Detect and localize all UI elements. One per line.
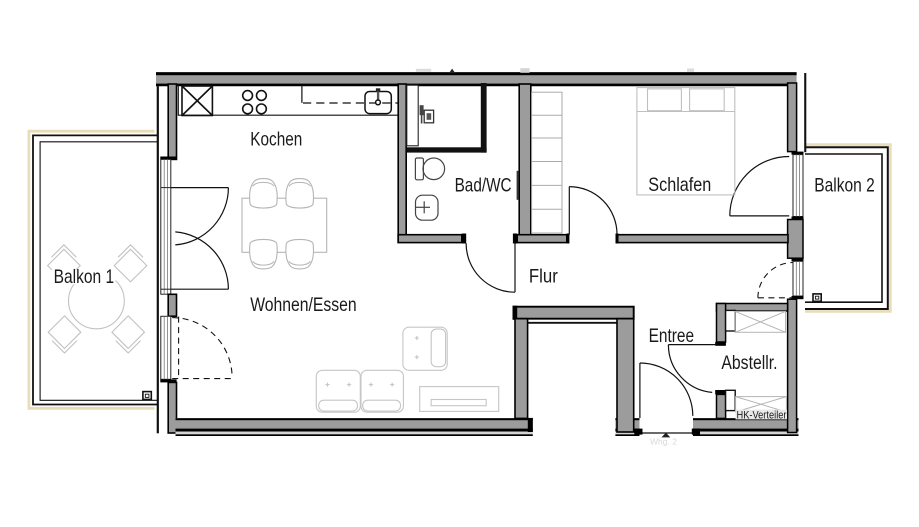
svg-text:Kochen: Kochen xyxy=(250,129,302,151)
svg-text:Flur: Flur xyxy=(529,266,558,288)
svg-text:Schlafen: Schlafen xyxy=(648,174,711,196)
svg-text:Entree: Entree xyxy=(649,325,695,347)
svg-text:Balkon 1: Balkon 1 xyxy=(54,266,115,288)
svg-text:Whg. 2: Whg. 2 xyxy=(650,437,677,447)
svg-text:HK-Verteiler: HK-Verteiler xyxy=(737,410,787,422)
svg-text:Bad/WC: Bad/WC xyxy=(455,174,512,196)
svg-text:Abstellr.: Abstellr. xyxy=(721,352,777,374)
svg-text:Wohnen/Essen: Wohnen/Essen xyxy=(250,294,356,316)
svg-text:Balkon 2: Balkon 2 xyxy=(814,174,875,196)
